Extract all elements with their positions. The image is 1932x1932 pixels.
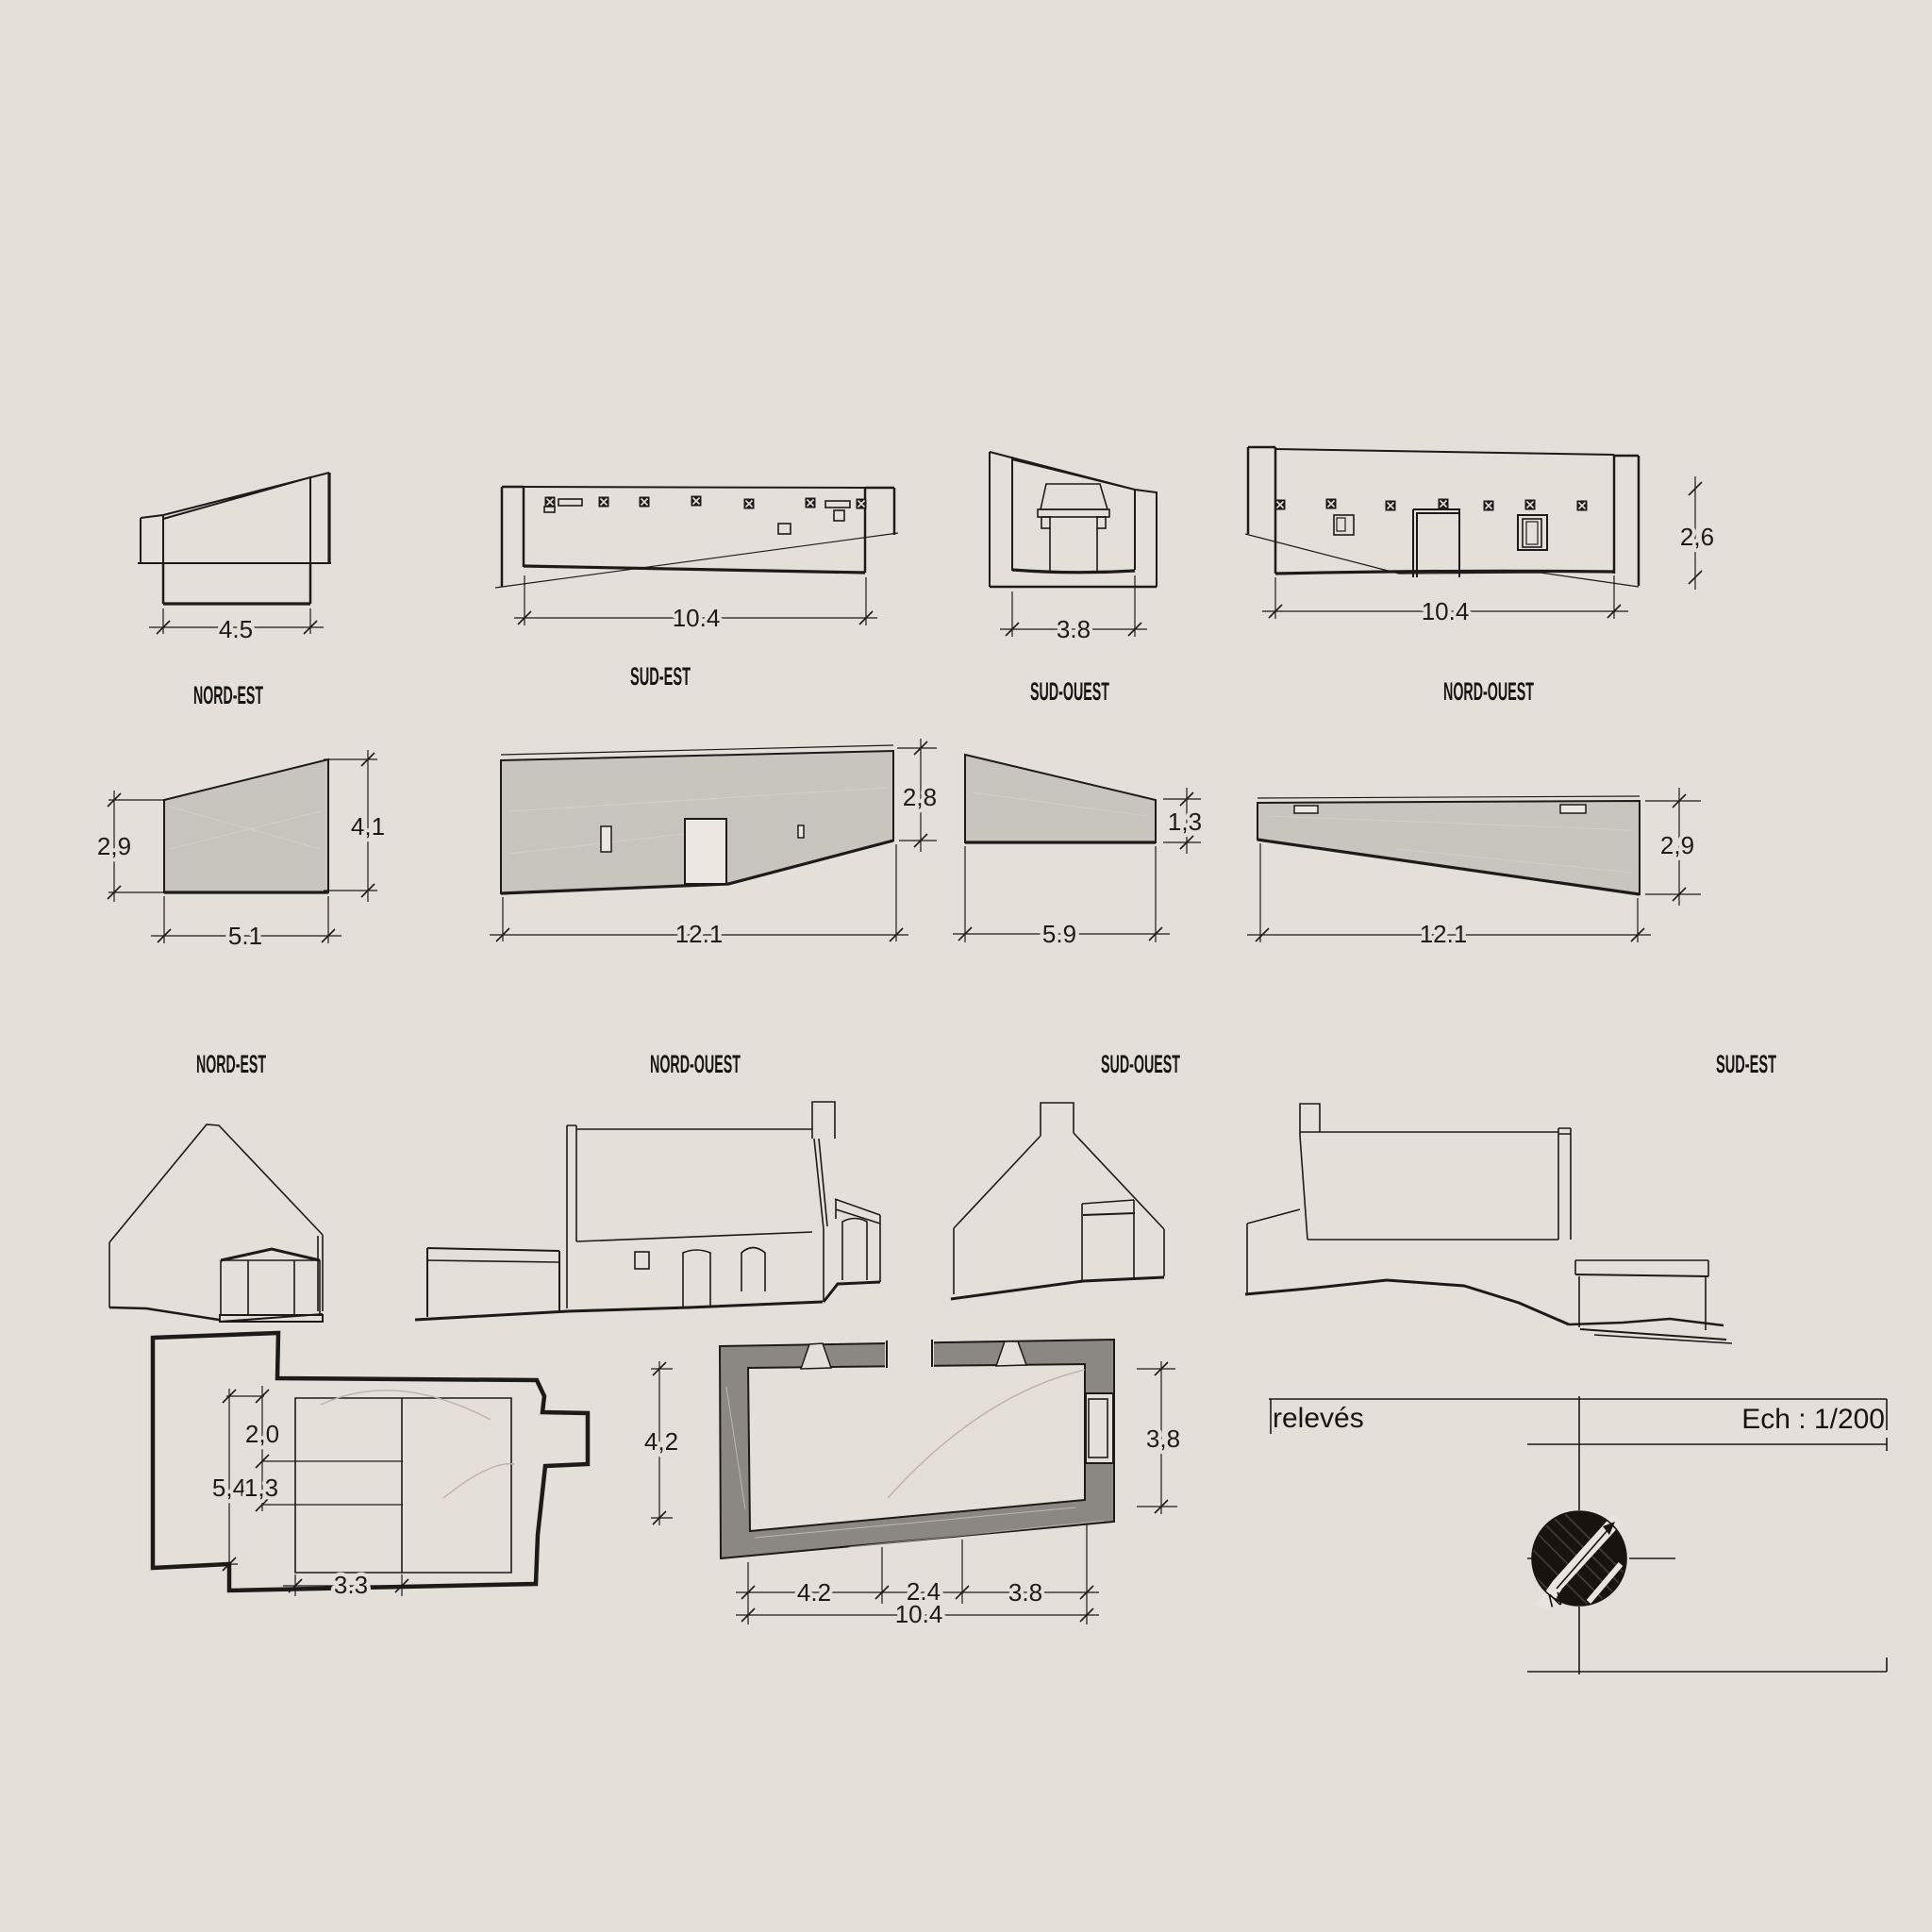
anchor-x-icon [1439, 499, 1449, 509]
sheet-title: relevés [1273, 1403, 1364, 1434]
dim-value: 5.9 [1042, 920, 1076, 948]
anchor-x-icon [806, 498, 816, 508]
dim-value: 2,9 [97, 832, 131, 860]
dim-value: 5.1 [228, 922, 262, 950]
anchor-x-icon [545, 497, 556, 508]
window-slit [1560, 805, 1586, 813]
anchor-x-icon [1577, 501, 1588, 511]
architectural-drawing: 4.5 NORD-EST 10.4 SUD-EST [0, 0, 1932, 1932]
anchor-x-icon [1386, 501, 1396, 511]
section-label: SUD-EST [1716, 1050, 1776, 1078]
top-edge [524, 487, 865, 488]
anchor-x-icon [1275, 500, 1286, 510]
anchor-x-icon [640, 497, 650, 508]
elevation-label: NORD-EST [193, 681, 263, 709]
door-opening [685, 819, 726, 884]
section-label: SUD-OUEST [1101, 1050, 1180, 1078]
dim-value: 1,3 [244, 1474, 278, 1502]
section-label: NORD-OUEST [650, 1050, 741, 1078]
dim-value: 3.8 [1057, 615, 1091, 643]
elevation-label: NORD-OUEST [1443, 677, 1534, 706]
sheet-background [0, 0, 1932, 1932]
dim-value: 4,2 [644, 1427, 678, 1456]
dim-value: 2,6 [1680, 523, 1714, 551]
dim-value: 3.8 [1008, 1578, 1042, 1607]
dim-value: 4.2 [797, 1578, 831, 1607]
sheet-scale: Ech : 1/200 [1741, 1404, 1885, 1435]
dim-value: 3.3 [334, 1571, 368, 1599]
dim-value: 12.1 [675, 920, 724, 948]
dim-value: 4.5 [219, 615, 253, 643]
dim-value: 2,9 [1660, 831, 1694, 859]
anchor-x-icon [691, 496, 702, 507]
window-slit [601, 826, 611, 852]
anchor-x-icon [1525, 500, 1536, 510]
dim-value: 10.4 [673, 604, 721, 632]
dim-value: 3,8 [1146, 1424, 1180, 1453]
anchor-x-icon [744, 499, 755, 509]
elevation-label: SUD-EST [630, 662, 691, 691]
anchor-x-icon [599, 497, 609, 508]
elevation-label: SUD-OUEST [1030, 677, 1109, 706]
dim-value: 10.4 [1422, 597, 1470, 625]
dim-value: 1,3 [1168, 808, 1202, 836]
dim-value: 5,4 [212, 1474, 246, 1502]
anchor-x-icon [1326, 499, 1337, 509]
dim-value: 12.1 [1420, 920, 1468, 948]
dim-value: 10.4 [895, 1600, 943, 1628]
door-gap [885, 1338, 934, 1369]
window-slit [1294, 806, 1318, 813]
anchor-x-icon [1484, 501, 1494, 511]
section-label: NORD-EST [196, 1050, 266, 1078]
dim-value: 4,1 [351, 812, 385, 841]
window-slit [798, 825, 804, 838]
dim-value: 2,8 [903, 783, 937, 811]
drawing-sheet: 4.5 NORD-EST 10.4 SUD-EST [0, 0, 1932, 1932]
anchor-x-icon [857, 499, 867, 509]
dim-value: 2,0 [245, 1420, 279, 1448]
window-right-wall [1086, 1393, 1113, 1463]
